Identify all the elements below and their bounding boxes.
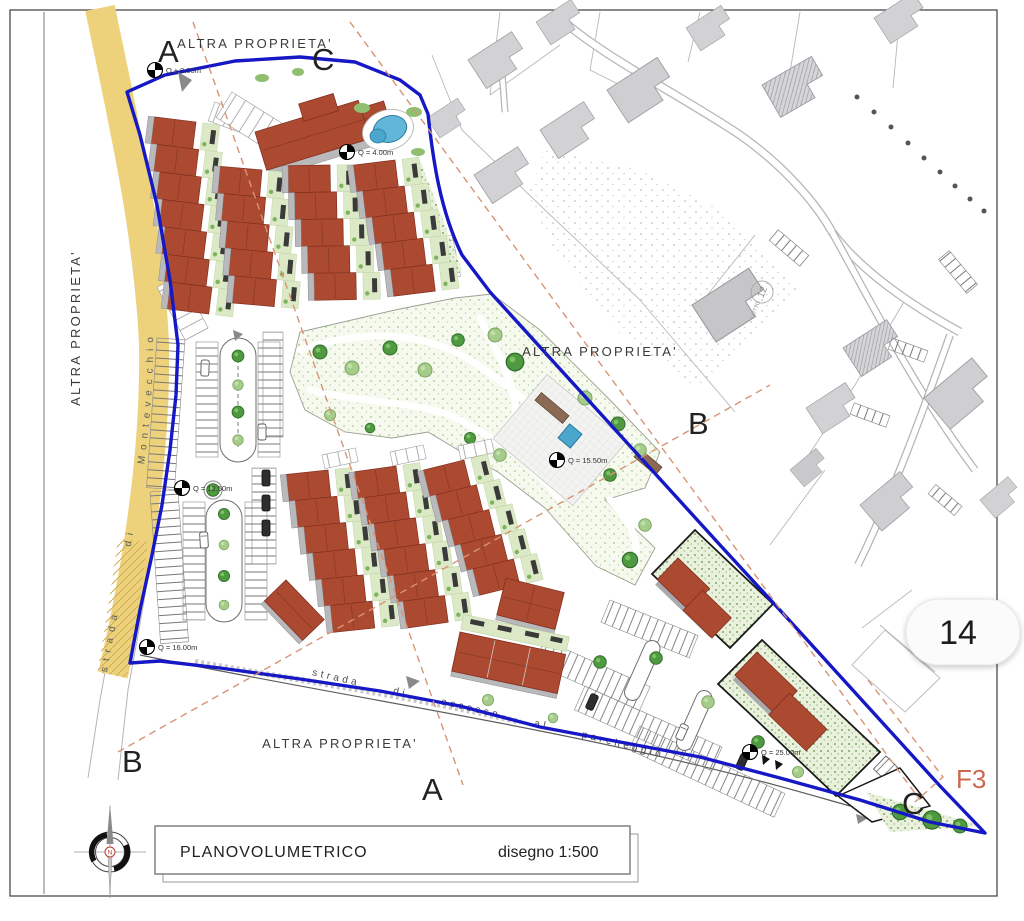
drawing-title: PLANOVOLUMETRICO bbox=[180, 844, 368, 861]
elevation-label: Q = 4.00m bbox=[358, 148, 393, 157]
section-marker-a-bottom: A bbox=[422, 772, 443, 807]
upper-housing-cluster bbox=[125, 68, 462, 340]
zone-label-f3: F3 bbox=[956, 764, 986, 794]
section-marker-a-top: A bbox=[158, 34, 179, 69]
property-label-north: ALTRA PROPRIETA' bbox=[177, 36, 333, 51]
compass-rose: N bbox=[74, 804, 146, 898]
north-needle bbox=[107, 804, 114, 844]
page-badge: 14 bbox=[906, 599, 1020, 665]
elevation-label: Q = 25.00m bbox=[761, 748, 800, 757]
elevation-label: Q = 12.50m bbox=[193, 484, 232, 493]
housing-block-sw bbox=[261, 580, 324, 644]
page-number: 14 bbox=[939, 614, 977, 652]
site-plan-drawing: 12 LOTTO strada di Montevecchio bbox=[0, 0, 1024, 921]
elevation-label: Q = 15.50m bbox=[568, 456, 607, 465]
title-block: PLANOVOLUMETRICO disegno 1:500 bbox=[155, 826, 638, 882]
entrance-arrow bbox=[178, 72, 192, 92]
plan-canvas: 12 LOTTO strada di Montevecchio bbox=[0, 0, 1024, 921]
section-marker-b-right: B bbox=[688, 406, 709, 441]
section-marker-b-bottom: B bbox=[122, 744, 143, 779]
context-tree-row bbox=[855, 95, 987, 214]
property-label-west: ALTRA PROPRIETA' bbox=[68, 250, 83, 406]
elevation-label: Q = 16.00m bbox=[158, 643, 197, 652]
drawing-scale: disegno 1:500 bbox=[498, 844, 599, 861]
section-marker-c-bottom: C bbox=[902, 786, 924, 821]
compass-north-label: N bbox=[108, 850, 113, 857]
property-label-south: ALTRA PROPRIETA' bbox=[262, 736, 418, 751]
property-label-east: ALTRA PROPRIETA' bbox=[522, 344, 678, 359]
